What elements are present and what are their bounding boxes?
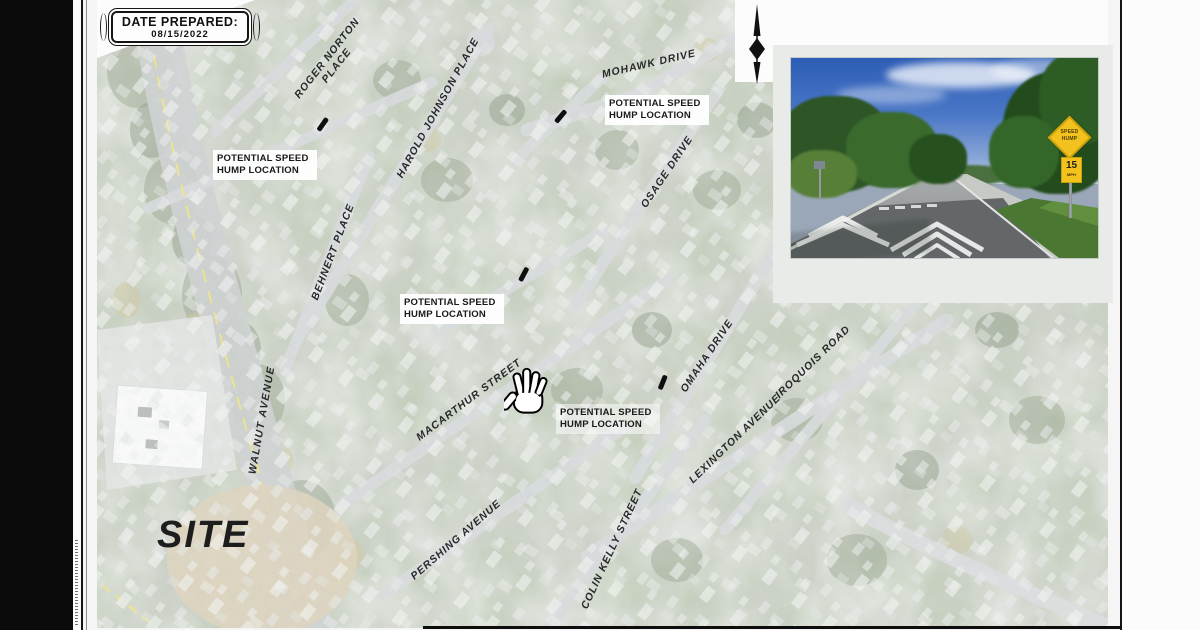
hand-cursor-icon — [504, 365, 550, 423]
sheet-border-left-inner — [86, 0, 87, 630]
sign-speed-value: 15 — [1062, 160, 1081, 172]
speed-hump-sign-text: SPEED HUMP — [1049, 129, 1090, 142]
photo-tree-right — [989, 116, 1059, 188]
map-document-page: { "sheet": { "date_box": { "label": "DAT… — [0, 0, 1200, 630]
speed-hump-callout-1: POTENTIAL SPEED HUMP LOCATION — [213, 150, 317, 180]
margin-stamp-microtext — [75, 540, 78, 625]
sign-word-hump: HUMP — [1062, 136, 1078, 142]
photo-tree-left — [790, 150, 857, 198]
date-box-left-bracket — [100, 13, 107, 41]
photo-left-sign-post — [819, 166, 821, 198]
sheet-border-right — [1120, 0, 1122, 630]
sheet-border-bottom — [423, 626, 1120, 629]
speed-hump-callout-4: POTENTIAL SPEED HUMP LOCATION — [556, 404, 660, 434]
sheet-border-left — [81, 0, 83, 630]
photo-tree-left — [909, 134, 967, 184]
speed-hump-street-photo: SPEED HUMP 15 MPH — [790, 57, 1099, 259]
inset-photo-panel: SPEED HUMP 15 MPH — [773, 45, 1113, 303]
speed-hump-callout-3: POTENTIAL SPEED HUMP LOCATION — [400, 294, 504, 324]
north-arrow-icon — [741, 2, 773, 84]
photo-left-sign — [814, 161, 825, 169]
date-prepared-box: DATE PREPARED: 08/15/2022 — [108, 8, 252, 46]
sign-speed-unit: MPH — [1062, 172, 1081, 177]
page-left-black-margin — [0, 0, 73, 630]
speed-hump-callout-2: POTENTIAL SPEED HUMP LOCATION — [605, 95, 709, 125]
date-box-right-bracket — [253, 13, 260, 41]
date-prepared-label: DATE PREPARED: — [117, 15, 243, 29]
date-prepared-value: 08/15/2022 — [117, 29, 243, 40]
sign-word-speed: SPEED — [1061, 129, 1079, 135]
site-label: SITE — [157, 514, 249, 557]
speed-limit-plaque: 15 MPH — [1061, 157, 1082, 183]
